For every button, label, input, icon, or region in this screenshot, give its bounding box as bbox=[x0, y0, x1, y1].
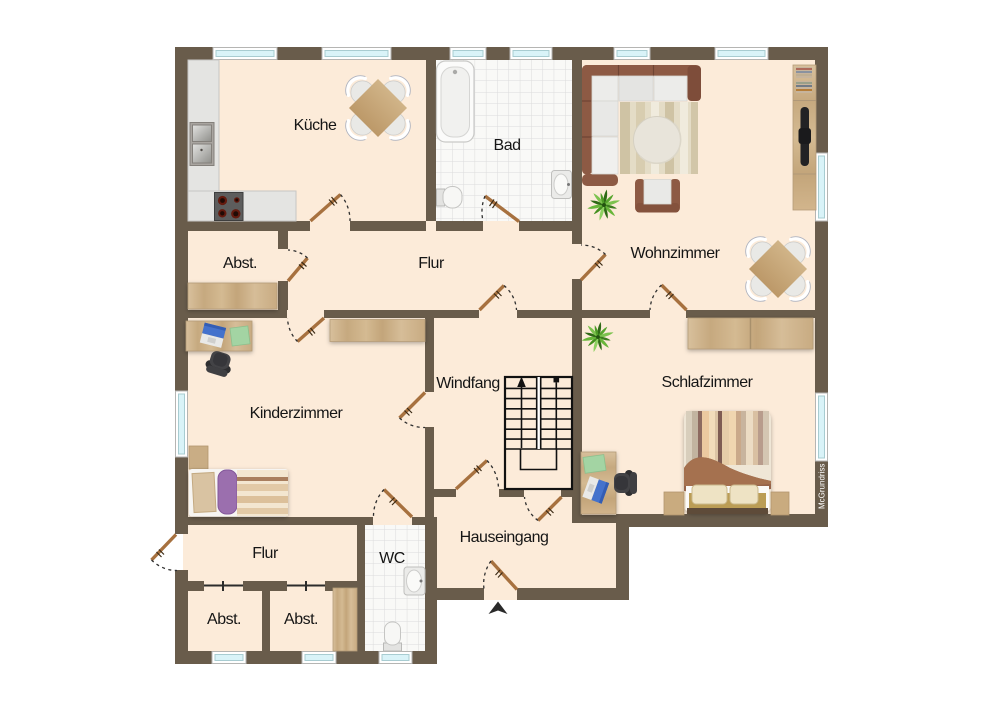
svg-text:Schlafzimmer: Schlafzimmer bbox=[662, 374, 754, 391]
svg-text:Windfang: Windfang bbox=[436, 375, 500, 392]
svg-text:Küche: Küche bbox=[294, 117, 337, 134]
svg-text:WC: WC bbox=[379, 550, 405, 567]
svg-text:Abst.: Abst. bbox=[284, 611, 318, 628]
svg-text:Flur: Flur bbox=[252, 545, 279, 562]
svg-text:McGrundriss: McGrundriss bbox=[818, 464, 827, 509]
svg-text:Abst.: Abst. bbox=[223, 255, 257, 272]
svg-text:Hauseingang: Hauseingang bbox=[460, 529, 549, 546]
svg-text:Abst.: Abst. bbox=[207, 611, 241, 628]
svg-text:Bad: Bad bbox=[494, 137, 521, 154]
svg-text:Flur: Flur bbox=[418, 255, 445, 272]
svg-text:Wohnzimmer: Wohnzimmer bbox=[631, 245, 721, 262]
svg-text:Kinderzimmer: Kinderzimmer bbox=[250, 405, 344, 422]
